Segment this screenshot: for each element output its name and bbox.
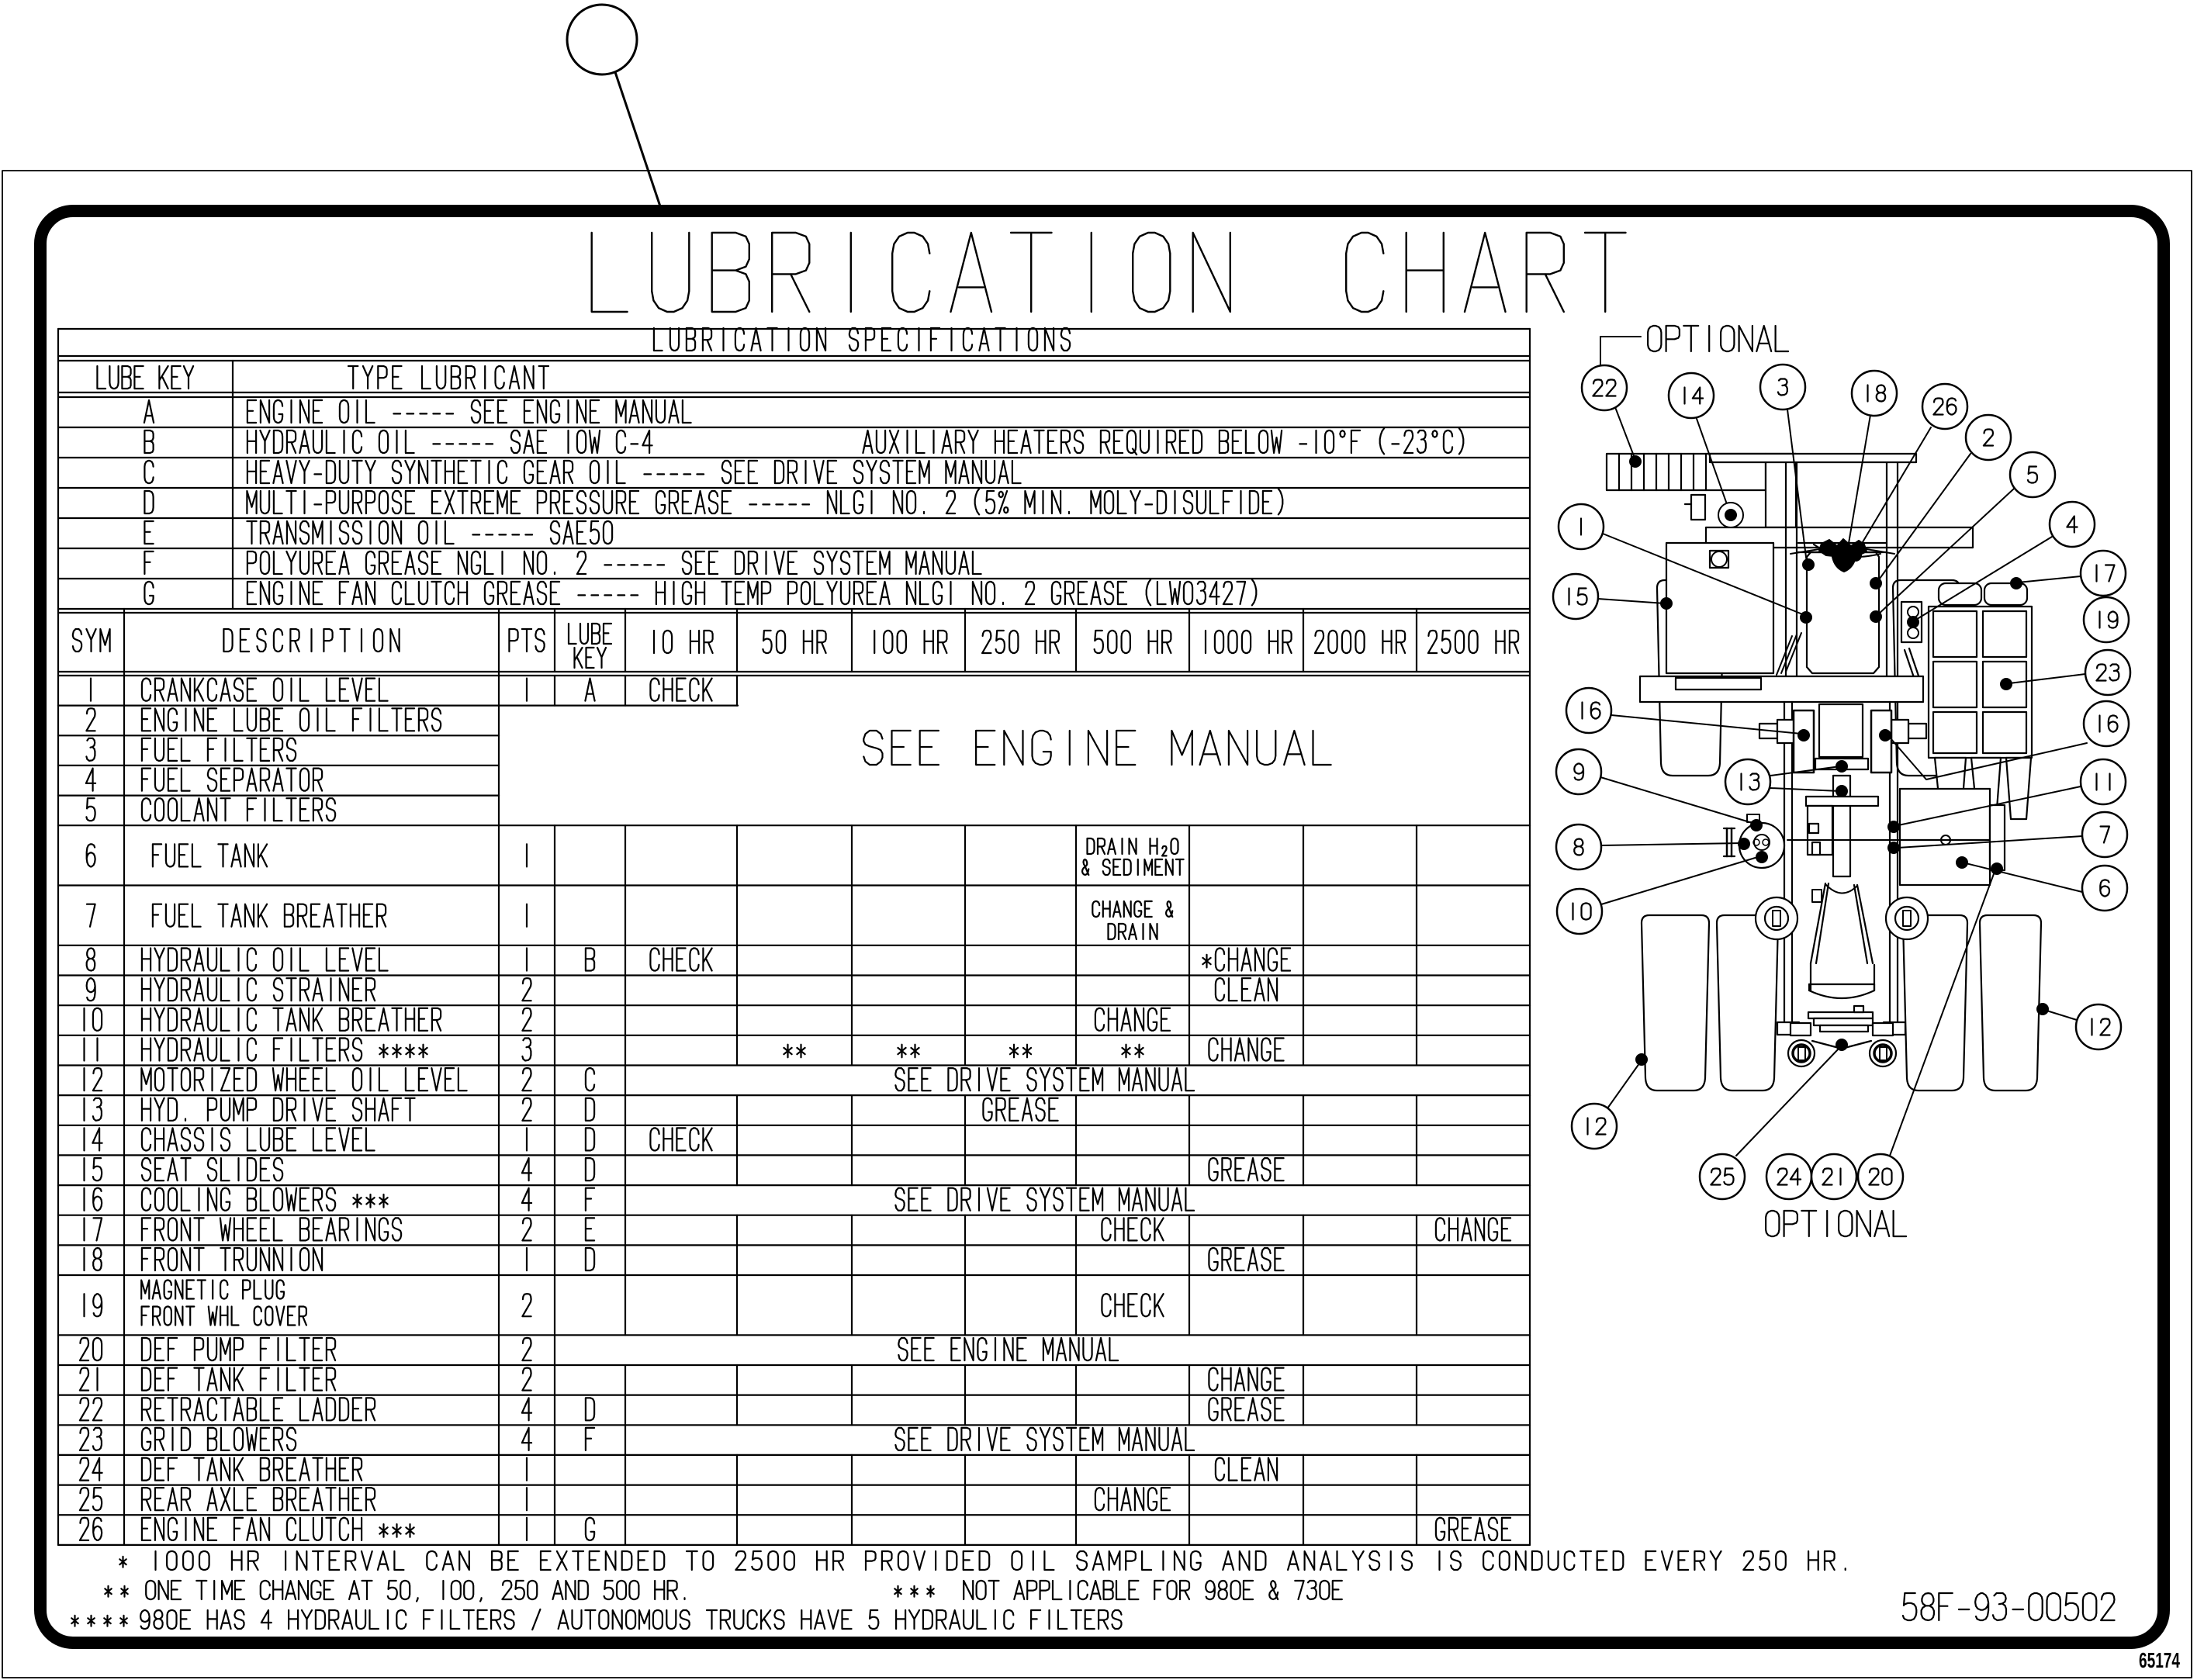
svg-text:65174: 65174	[2139, 1648, 2180, 1672]
